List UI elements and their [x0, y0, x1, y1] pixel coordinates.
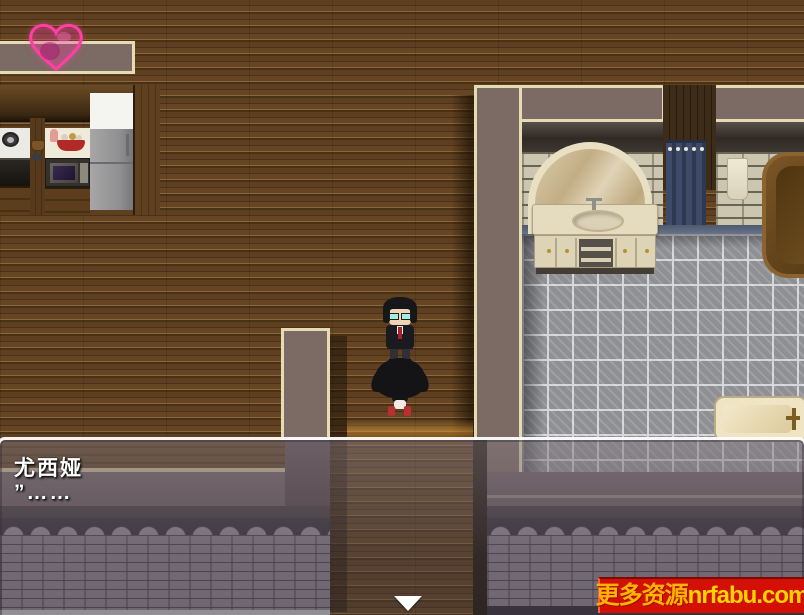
refrigerator	[90, 129, 133, 210]
tall-cabinet	[133, 85, 160, 215]
basket-item	[31, 140, 45, 151]
pot-item	[32, 154, 42, 161]
faucet-bar	[586, 198, 602, 201]
vanity-cabinets	[534, 235, 656, 268]
standing-character-sprite	[377, 297, 423, 365]
microwave	[45, 158, 90, 187]
dialog-speaker-name: 尤西娅	[14, 452, 83, 482]
microwave-door	[50, 163, 78, 183]
watermark-banner: 更多资源nrfabu.com	[598, 577, 804, 613]
kitchen-drawers	[45, 187, 90, 215]
bathtub	[714, 396, 804, 442]
bathtub-faucet	[786, 416, 800, 420]
fridge-divider	[90, 162, 133, 164]
stove-cooktop	[0, 158, 30, 186]
hanging-towel	[727, 158, 748, 200]
watermark-domain-text: nrfabu.com	[688, 584, 804, 608]
kneeling-character-sprite	[372, 358, 428, 418]
fridge-handle	[126, 134, 129, 156]
heart-icon	[24, 21, 88, 73]
wooden-table	[762, 152, 804, 278]
sink-basin	[572, 210, 624, 232]
bathroom-wall-top-shadow	[716, 122, 804, 152]
curtain-hooks	[666, 145, 706, 153]
kitchen-column	[30, 118, 45, 215]
wall-shadow	[451, 95, 474, 440]
microwave-glass	[53, 166, 75, 180]
dialog-text: ”……	[14, 481, 73, 505]
vanity-open-shelf	[579, 239, 613, 267]
sink-vanity	[532, 204, 658, 274]
stove-base-cabinet	[0, 186, 30, 215]
fridge-top-panel	[90, 93, 133, 129]
stove-backsplash	[0, 128, 30, 158]
game-screen[interactable]: 尤西娅 ”…… 更多资源nrfabu.com	[0, 0, 804, 615]
bathroom-divider-wall	[474, 88, 522, 472]
kitchen-shelf	[45, 128, 90, 158]
fruit-bowl	[57, 140, 85, 151]
vanity-base	[536, 268, 654, 274]
watermark-cn-text: 更多资源	[596, 584, 688, 608]
frying-pan	[2, 132, 19, 147]
glasses-icon	[389, 313, 399, 320]
fruit-item	[69, 133, 76, 140]
continue-arrow-icon[interactable]	[394, 596, 422, 611]
room-divider-wall	[281, 328, 330, 440]
bathroom-top-wall-right	[712, 85, 804, 122]
shower-curtain	[666, 140, 706, 232]
microwave-buttons	[80, 163, 88, 183]
